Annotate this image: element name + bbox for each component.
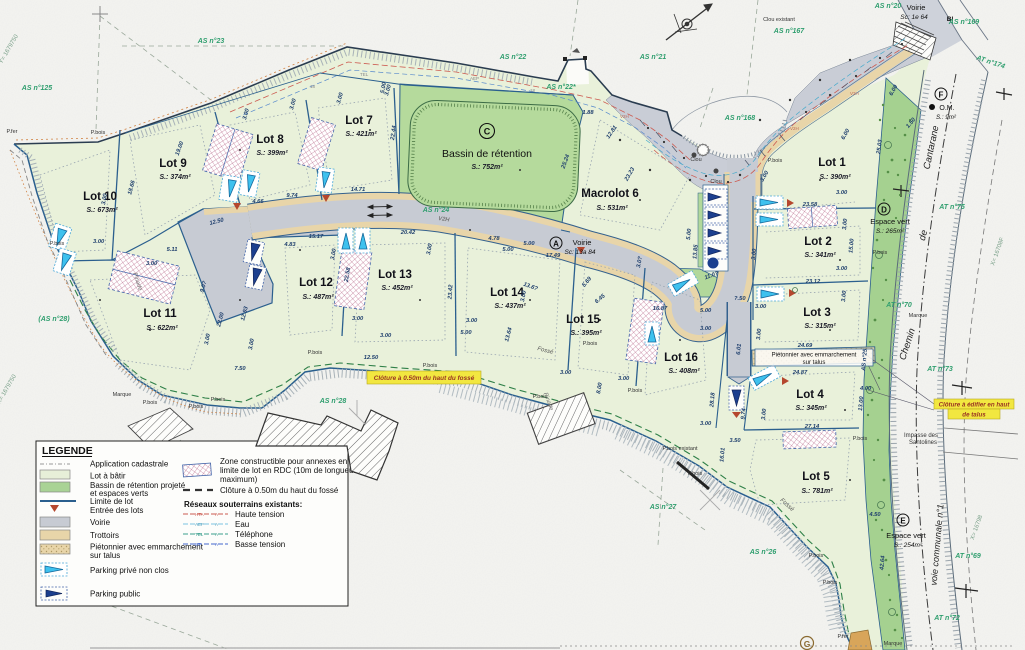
svg-text:3.00: 3.00 <box>842 218 849 231</box>
svg-text:15.17: 15.17 <box>309 234 324 240</box>
svg-text:Zone constructible pour annexe: Zone constructible pour annexes en <box>220 457 347 466</box>
svg-text:E: E <box>900 517 906 526</box>
svg-text:4.78: 4.78 <box>487 236 500 242</box>
svg-text:16.87: 16.87 <box>653 306 668 312</box>
svg-text:AS n°125: AS n°125 <box>21 84 53 92</box>
svg-text:LEGENDE: LEGENDE <box>42 445 93 457</box>
svg-text:Espace vert: Espace vert <box>870 217 911 226</box>
svg-text:Clou: Clou <box>710 179 721 185</box>
svg-text:P.bois: P.bois <box>809 553 824 559</box>
svg-text:3.00: 3.00 <box>618 376 630 382</box>
svg-text:Espace vert: Espace vert <box>886 531 927 540</box>
svg-text:S.: 622m²: S.: 622m² <box>146 325 178 332</box>
svg-text:F: F <box>939 91 944 100</box>
svg-text:A: A <box>553 240 559 249</box>
svg-text:S.: 374m²: S.: 374m² <box>159 174 191 181</box>
svg-text:D: D <box>881 206 887 215</box>
svg-text:Clou existant: Clou existant <box>763 17 795 23</box>
svg-text:Parking privé non clos: Parking privé non clos <box>90 566 169 575</box>
svg-text:Réseaux souterrains existants:: Réseaux souterrains existants: <box>184 500 302 509</box>
svg-text:Marque: Marque <box>909 313 928 319</box>
svg-text:P.bois: P.bois <box>873 250 888 256</box>
svg-text:Piétonnier avec emmarchement: Piétonnier avec emmarchement <box>772 353 857 359</box>
svg-text:AT n°69: AT n°69 <box>954 552 981 560</box>
svg-text:S.: 437m²: S.: 437m² <box>494 303 526 310</box>
svg-text:Clôture à 0.50m du haut du fos: Clôture à 0.50m du haut du fossé <box>374 375 475 382</box>
svg-text:sur talus: sur talus <box>90 551 120 560</box>
svg-text:AS n°28: AS n°28 <box>319 397 347 405</box>
svg-text:Lot 14: Lot 14 <box>490 287 524 299</box>
svg-text:24.69: 24.69 <box>797 343 813 349</box>
svg-text:AT n°72: AT n°72 <box>933 614 960 622</box>
svg-text:AT n°75: AT n°75 <box>938 203 965 211</box>
svg-text:P.bois: P.bois <box>823 580 838 586</box>
svg-text:P.bois: P.bois <box>50 241 65 247</box>
svg-text:3.00: 3.00 <box>146 261 158 267</box>
svg-text:de talus: de talus <box>962 412 986 419</box>
svg-text:P.bois: P.bois <box>211 397 226 403</box>
svg-text:P.bois: P.bois <box>688 471 703 477</box>
svg-text:Lot 10: Lot 10 <box>83 191 117 203</box>
svg-text:Impasse des: Impasse des <box>904 433 938 439</box>
svg-text:limite de lot en RDC (10m de l: limite de lot en RDC (10m de longueur <box>220 466 356 475</box>
svg-text:24.87: 24.87 <box>792 370 808 376</box>
svg-text:14.71: 14.71 <box>351 187 366 193</box>
svg-text:5.00: 5.00 <box>523 241 535 247</box>
svg-text:9.74: 9.74 <box>286 193 298 199</box>
svg-text:4.50: 4.50 <box>868 512 881 518</box>
svg-text:S.: 254m²: S.: 254m² <box>894 542 923 549</box>
svg-text:sur talus: sur talus <box>803 360 826 366</box>
svg-text:S.: 781m²: S.: 781m² <box>801 488 833 495</box>
svg-text:Lot 15: Lot 15 <box>566 314 600 326</box>
svg-text:Macrolot 6: Macrolot 6 <box>581 188 639 200</box>
svg-text:TEL: TEL <box>195 532 204 537</box>
svg-text:12.50: 12.50 <box>364 355 379 361</box>
svg-text:Lot 2: Lot 2 <box>804 236 831 248</box>
svg-text:Voirie: Voirie <box>907 3 926 12</box>
svg-text:Téléphone: Téléphone <box>235 530 273 539</box>
svg-text:3.00: 3.00 <box>700 326 712 332</box>
svg-text:C: C <box>484 127 491 137</box>
svg-text:Lot 13: Lot 13 <box>378 269 412 281</box>
svg-text:AS n°168: AS n°168 <box>724 114 756 122</box>
svg-text:4.83: 4.83 <box>283 242 296 248</box>
svg-text:S.: 9m²: S.: 9m² <box>936 114 957 121</box>
svg-text:Marque: Marque <box>884 641 903 647</box>
svg-text:AS n°27: AS n°27 <box>649 503 678 511</box>
svg-text:Lot 11: Lot 11 <box>143 308 177 320</box>
svg-text:4.00: 4.00 <box>859 386 872 392</box>
svg-text:3.00: 3.00 <box>380 333 392 339</box>
svg-text:P.bois: P.bois <box>583 341 598 347</box>
svg-text:V2H: V2H <box>620 114 629 119</box>
svg-text:3.00: 3.00 <box>466 318 478 324</box>
svg-text:A: A <box>215 512 218 517</box>
svg-text:A: A <box>215 542 218 547</box>
svg-text:3.00: 3.00 <box>755 304 767 310</box>
svg-text:3.00: 3.00 <box>761 408 768 421</box>
svg-text:4.66: 4.66 <box>251 199 264 205</box>
svg-text:17.49: 17.49 <box>546 253 561 259</box>
svg-text:HTA: HTA <box>195 512 204 517</box>
svg-text:Lot 9: Lot 9 <box>159 158 186 170</box>
svg-text:Lot 5: Lot 5 <box>802 471 830 483</box>
svg-text:P.bois: P.bois <box>628 388 643 394</box>
svg-text:AS n°24: AS n°24 <box>422 206 450 214</box>
svg-text:TEL: TEL <box>360 72 369 77</box>
svg-text:AS n°169: AS n°169 <box>948 18 980 26</box>
svg-text:3.00: 3.00 <box>841 290 848 303</box>
svg-text:V2H: V2H <box>850 91 859 96</box>
svg-text:Limite de lot: Limite de lot <box>90 497 134 506</box>
svg-text:P.bois: P.bois <box>91 130 106 136</box>
svg-text:Clôture à édifier en haut: Clôture à édifier en haut <box>939 402 1011 409</box>
svg-text:AT n°70: AT n°70 <box>885 301 912 309</box>
svg-text:S.: 531m²: S.: 531m² <box>596 205 628 212</box>
svg-text:S.: 421m²: S.: 421m² <box>345 131 377 138</box>
svg-text:AS n°22: AS n°22 <box>499 53 527 61</box>
svg-text:S.: 399m²: S.: 399m² <box>256 150 288 157</box>
svg-text:AS n°21: AS n°21 <box>639 53 667 61</box>
svg-text:23.58: 23.58 <box>802 202 818 208</box>
svg-text:Sc: 13a 84: Sc: 13a 84 <box>564 249 595 256</box>
svg-text:5.11: 5.11 <box>167 247 178 253</box>
svg-text:Lot 12: Lot 12 <box>299 277 333 289</box>
svg-text:Lot 3: Lot 3 <box>803 307 830 319</box>
svg-text:S.: 452m²: S.: 452m² <box>381 285 413 292</box>
svg-text:Lot 7: Lot 7 <box>345 115 372 127</box>
svg-text:6.01: 6.01 <box>736 343 743 355</box>
svg-text:P.fer: P.fer <box>838 634 849 640</box>
svg-text:P.bois: P.bois <box>768 158 783 164</box>
svg-text:Entrée des lots: Entrée des lots <box>90 506 143 515</box>
svg-text:Voirie: Voirie <box>90 518 111 527</box>
svg-text:3.00: 3.00 <box>836 190 848 196</box>
svg-text:A: A <box>215 522 218 527</box>
svg-text:23.12: 23.12 <box>805 279 821 285</box>
svg-text:1.88: 1.88 <box>582 110 594 116</box>
svg-text:3.50: 3.50 <box>729 438 741 444</box>
svg-text:9.74: 9.74 <box>741 407 748 420</box>
svg-text:S.: 341m²: S.: 341m² <box>804 252 836 259</box>
svg-text:P.bois existant: P.bois existant <box>662 446 698 452</box>
svg-text:P.bois: P.bois <box>189 404 204 410</box>
svg-text:Lot 16: Lot 16 <box>664 352 698 364</box>
svg-text:Haute tension: Haute tension <box>235 510 284 519</box>
svg-text:Marque: Marque <box>113 392 132 398</box>
svg-text:S.: 408m²: S.: 408m² <box>668 368 700 375</box>
svg-text:AEP: AEP <box>470 76 479 81</box>
svg-text:Basse tension: Basse tension <box>235 540 285 549</box>
svg-text:S.: 395m²: S.: 395m² <box>570 330 602 337</box>
svg-text:Lot 8: Lot 8 <box>256 134 284 146</box>
svg-text:Application cadastrale: Application cadastrale <box>90 460 169 469</box>
svg-text:AS n°23: AS n°23 <box>197 37 225 45</box>
svg-text:16.01: 16.01 <box>719 447 726 462</box>
svg-text:AT n°73: AT n°73 <box>926 365 953 373</box>
svg-text:S.: 315m²: S.: 315m² <box>804 323 836 330</box>
svg-text:3.00: 3.00 <box>751 248 758 261</box>
svg-text:Parking public: Parking public <box>90 590 140 599</box>
svg-text:O.M.: O.M. <box>939 105 954 112</box>
svg-text:23.42: 23.42 <box>447 284 454 301</box>
svg-text:AS n°167: AS n°167 <box>773 27 806 35</box>
svg-text:3.00: 3.00 <box>560 370 572 376</box>
svg-text:S.: 487m²: S.: 487m² <box>302 294 334 301</box>
svg-text:Trottoirs: Trottoirs <box>90 531 119 540</box>
svg-text:G: G <box>804 639 811 649</box>
svg-text:S.: 752m²: S.: 752m² <box>471 164 503 171</box>
svg-text:P.bois: P.bois <box>143 400 158 406</box>
svg-text:3.00: 3.00 <box>352 316 364 322</box>
svg-text:Santolines: Santolines <box>909 440 937 446</box>
svg-text:S.: 345m²: S.: 345m² <box>795 405 827 412</box>
svg-text:S.: 390m²: S.: 390m² <box>819 174 851 181</box>
svg-text:7.50: 7.50 <box>234 366 246 372</box>
svg-text:3.00: 3.00 <box>700 421 712 427</box>
svg-text:Sc: 1e 64: Sc: 1e 64 <box>900 14 928 21</box>
svg-text:27.14: 27.14 <box>804 424 820 430</box>
svg-text:V2H: V2H <box>790 126 799 131</box>
svg-text:Lot 1: Lot 1 <box>818 157 846 169</box>
svg-text:5.00: 5.00 <box>700 308 712 314</box>
svg-text:?.50: ?.50 <box>734 296 746 302</box>
svg-text:5.00: 5.00 <box>502 247 514 253</box>
svg-text:AS n°20: AS n°20 <box>874 2 902 10</box>
svg-text:(AS n°28): (AS n°28) <box>38 315 70 323</box>
svg-text:AS n°26: AS n°26 <box>749 548 777 556</box>
svg-text:3.00: 3.00 <box>756 328 763 341</box>
svg-text:AS n°22*: AS n°22* <box>545 83 576 91</box>
svg-text:3.00: 3.00 <box>836 266 848 272</box>
svg-text:18: 18 <box>310 84 316 89</box>
svg-text:3.00: 3.00 <box>93 239 105 245</box>
svg-text:P.bois: P.bois <box>308 350 323 356</box>
svg-text:Clôture à 0.50m du haut du fos: Clôture à 0.50m du haut du fossé <box>220 486 339 495</box>
svg-text:20.42: 20.42 <box>400 230 416 236</box>
svg-text:A: A <box>215 532 218 537</box>
svg-text:Clou: Clou <box>690 157 701 163</box>
svg-text:Lot à bâtir: Lot à bâtir <box>90 472 126 481</box>
svg-text:Bassin de rétention: Bassin de rétention <box>442 148 532 160</box>
svg-text:Voirie: Voirie <box>573 238 592 247</box>
svg-text:P.fer: P.fer <box>7 129 18 135</box>
svg-text:P.bois: P.bois <box>423 363 438 369</box>
svg-text:P.bois: P.bois <box>853 436 868 442</box>
svg-text:5.00: 5.00 <box>686 228 693 241</box>
svg-text:Eau: Eau <box>235 520 249 529</box>
svg-text:S.: 673m²: S.: 673m² <box>86 207 118 214</box>
svg-text:5.00: 5.00 <box>460 330 472 336</box>
svg-text:Lot 4: Lot 4 <box>796 389 824 401</box>
svg-text:maximum): maximum) <box>220 475 258 484</box>
svg-text:S.: 265m²: S.: 265m² <box>876 228 905 235</box>
svg-text:AEP: AEP <box>195 522 204 527</box>
svg-text:BT: BT <box>195 542 201 547</box>
